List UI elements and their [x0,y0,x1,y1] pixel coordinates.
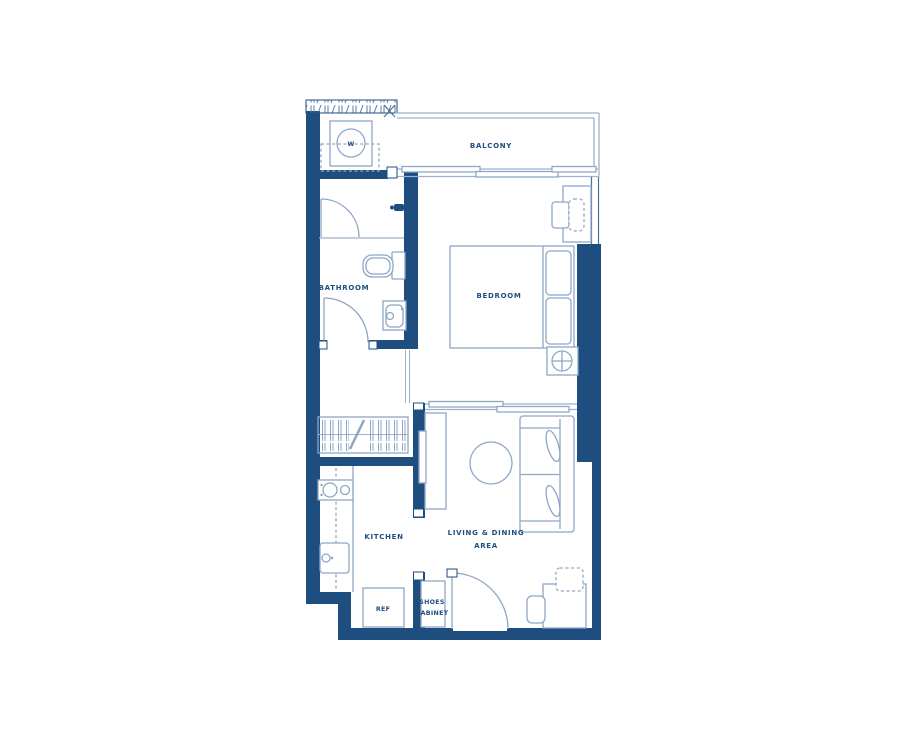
shoes-cabinet: SHOES CABINET [416,581,449,627]
desk-set [527,568,586,628]
entry-area: SHOES CABINET [416,568,586,629]
wardrobe [318,417,408,453]
wall-step-vertical [338,592,351,633]
bedroom-area: BEDROOM [450,186,591,375]
door-stopper [394,204,404,211]
wall-bottom-left [338,628,453,640]
entry-door-swing [452,573,508,629]
ac-ledge-hatch [306,100,397,113]
sink-faucet [401,308,403,310]
balcony-area: W BALCONY [306,100,599,177]
bathroom-sink [383,301,406,330]
kitchen-sink [320,543,349,573]
kitchen-label: KITCHEN [364,533,403,541]
dining-table [470,442,512,484]
door-frame-cap [319,341,327,349]
refrigerator-label: REF [376,606,390,613]
sink-basin [320,543,349,573]
floor-plan-drawing: W BALCONY BATHROOM [0,0,900,741]
wardrobe-hangers [367,420,406,451]
sliding-panel [402,167,480,173]
washing-machine: W [321,121,379,171]
shoes-cabinet-label-line1: SHOES [419,599,445,606]
sliding-panel [429,402,503,408]
balcony-sliding-door [387,167,598,179]
wall-end-cap [414,403,424,410]
door-frame-cap [369,341,377,349]
sofa [520,416,574,532]
chair-dashed [569,199,584,231]
bathroom-door-swing [324,298,368,342]
dressing-table-set [552,186,591,242]
window-end-cap [387,167,397,178]
wall-left [306,111,320,604]
bedroom-sliding-partition [425,402,577,413]
toilet-tank [392,252,405,279]
wall-bottom-right [507,628,601,640]
bed: BEDROOM [450,246,574,348]
wardrobe-hangers [322,420,349,451]
sliding-panel [497,407,569,413]
floor-plan: W BALCONY BATHROOM [0,0,900,741]
sink-faucet [331,557,334,560]
nightstand [547,347,578,375]
door-stopper-dot [390,206,394,210]
wall-balcony-bathroom [306,170,388,179]
wall-right-thick [577,244,601,462]
sliding-panel [552,167,596,173]
toilet [363,252,405,279]
balcony-label: BALCONY [470,142,512,150]
washer-label: W [347,141,354,148]
wall-end-cap [414,572,424,580]
stove [318,480,353,500]
living-area: LIVING & DINING AREA [419,413,574,550]
bedroom-label: BEDROOM [476,292,521,300]
sliding-panel [476,172,558,178]
wall-end-cap [414,509,424,517]
side-chair [527,596,545,623]
door-frame-cap [447,569,457,577]
tv [419,431,426,483]
tv-console [425,413,446,509]
wall-wardrobe-bottom [306,457,425,466]
living-label-line1: LIVING & DINING [448,529,525,537]
bathroom-label: BATHROOM [319,284,370,292]
shoes-cabinet-label-line2: CABINET [416,610,449,617]
stove-knob [320,494,322,496]
living-label-line2: AREA [474,542,498,550]
desk-chair-dashed [556,568,583,591]
refrigerator: REF [363,588,404,627]
shower-door-swing [321,199,359,237]
stool [552,202,569,228]
wall-entry-threshold [452,631,508,640]
stove-knob [320,484,322,486]
bathroom-area: BATHROOM [319,199,406,349]
wall-right-lower [592,462,601,640]
